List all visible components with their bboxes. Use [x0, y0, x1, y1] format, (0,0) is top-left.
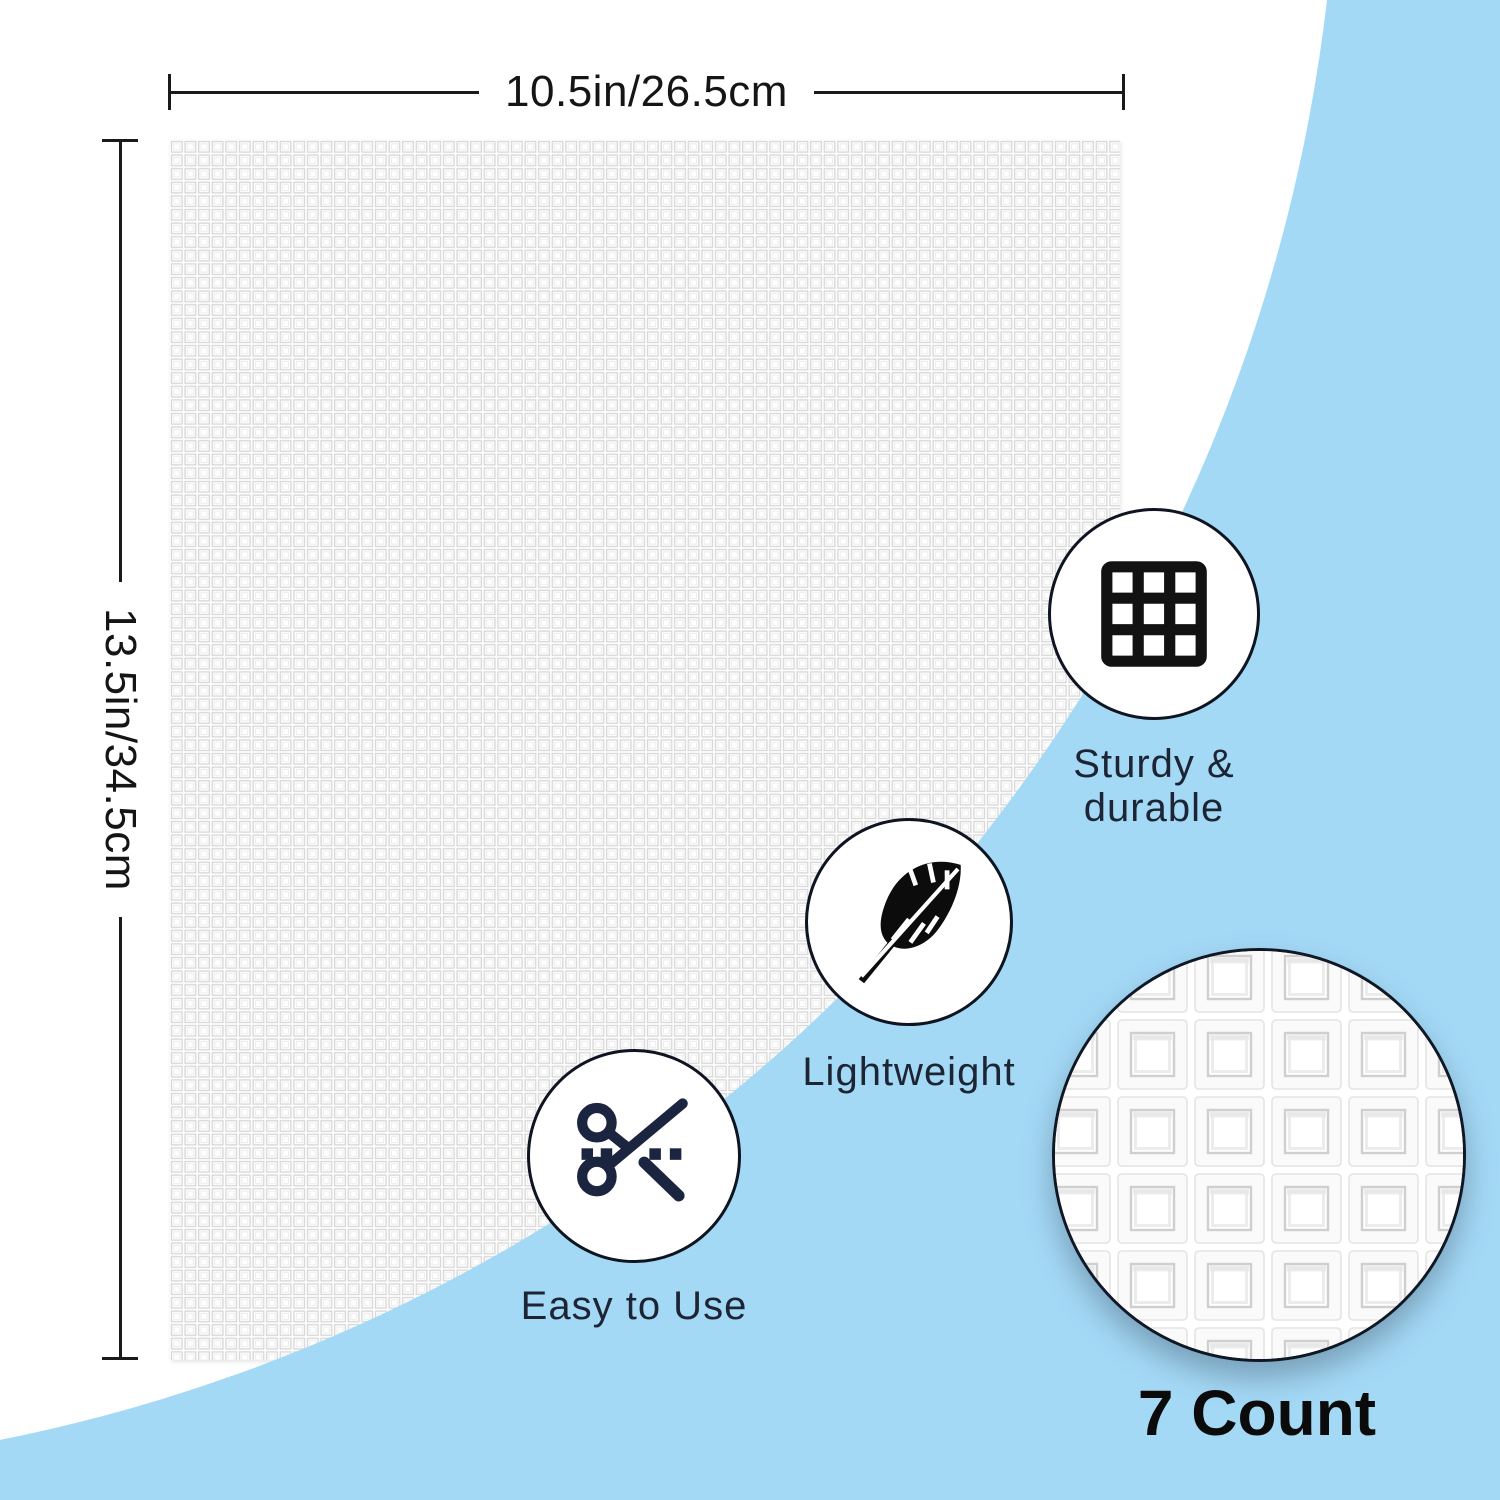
- feature-label-line2: durable: [1004, 786, 1304, 830]
- feature-badge-sturdy: [1048, 508, 1260, 720]
- feature-label-sturdy: Sturdy & durable: [1004, 742, 1304, 830]
- measure-endcap-right: [1122, 74, 1125, 110]
- feature-badge-lightweight: [805, 818, 1013, 1026]
- measure-line: [119, 917, 122, 1357]
- measure-line: [814, 91, 1122, 94]
- width-measurement: 10.5in/26.5cm: [168, 70, 1125, 114]
- feature-label-line1: Sturdy &: [1004, 742, 1304, 786]
- width-measurement-label: 10.5in/26.5cm: [479, 70, 814, 114]
- height-measurement: 13.5in/34.5cm: [98, 139, 142, 1360]
- count-label: 7 Count: [1057, 1376, 1457, 1450]
- grid-icon: [1095, 555, 1213, 673]
- feature-label-lightweight: Lightweight: [759, 1050, 1059, 1094]
- feature-badge-easy: [527, 1049, 741, 1263]
- scissors-icon: [570, 1092, 698, 1220]
- product-infographic: 10.5in/26.5cm 13.5in/34.5cm Sturdy & dur…: [0, 0, 1500, 1500]
- feature-label-easy: Easy to Use: [454, 1284, 814, 1328]
- measure-line: [119, 142, 122, 582]
- feather-icon: [841, 854, 977, 990]
- mesh-closeup-circle: [1052, 948, 1466, 1362]
- height-measurement-label: 13.5in/34.5cm: [98, 582, 142, 917]
- measure-line: [171, 91, 479, 94]
- measure-endcap-bottom: [102, 1357, 138, 1360]
- mesh-closeup-pattern: [1055, 951, 1465, 1361]
